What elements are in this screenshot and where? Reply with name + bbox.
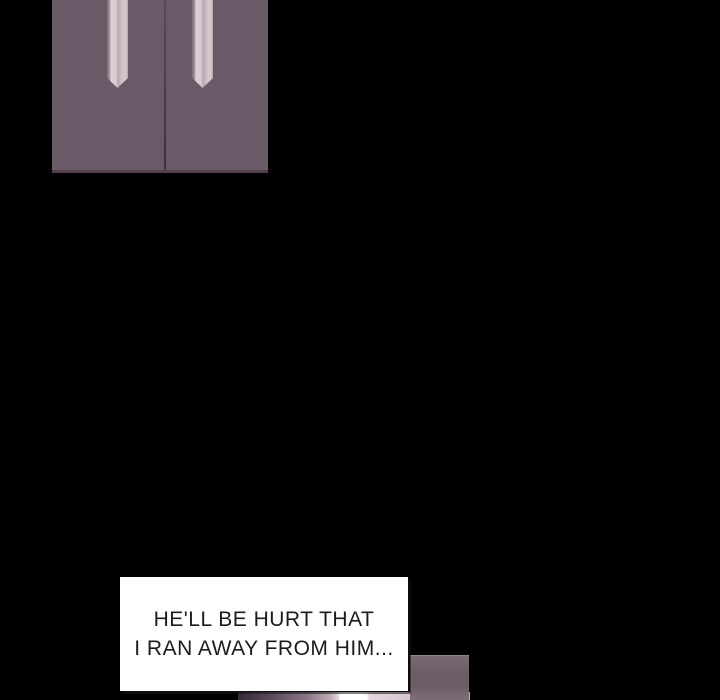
speech-bubble-line-1: HE'LL BE HURT THAT	[154, 605, 375, 634]
comic-page: HE'LL BE HURT THAT I RAN AWAY FROM HIM..…	[0, 0, 720, 700]
door-pull-strip-right	[192, 0, 213, 88]
speech-bubble-line-2: I RAN AWAY FROM HIM...	[134, 634, 394, 663]
closet-door-panel	[52, 0, 268, 173]
door-pull-strip-left	[107, 0, 128, 88]
speech-bubble: HE'LL BE HURT THAT I RAN AWAY FROM HIM..…	[120, 577, 408, 691]
closet-door-seam	[164, 0, 166, 170]
next-panel-wall-corner	[410, 655, 469, 700]
